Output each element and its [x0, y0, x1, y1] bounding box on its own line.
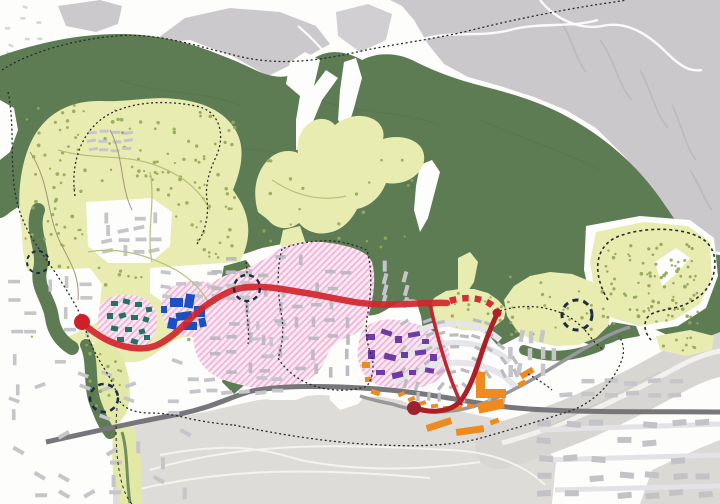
- building: [168, 400, 179, 404]
- building: [144, 335, 150, 340]
- building: [508, 347, 513, 359]
- tree-dot: [173, 127, 176, 130]
- building: [131, 315, 138, 320]
- tree-dot: [72, 109, 76, 113]
- tree-dot: [648, 292, 650, 294]
- tree-dot: [140, 276, 142, 278]
- building: [176, 282, 186, 286]
- building: [65, 276, 69, 288]
- tree-dot: [407, 184, 410, 187]
- tree-dot: [655, 247, 658, 250]
- tree-dot: [681, 307, 685, 311]
- building: [109, 490, 121, 494]
- tree-dot: [134, 276, 137, 279]
- building: [135, 302, 142, 307]
- building: [183, 487, 187, 499]
- building: [153, 212, 157, 223]
- tree-dot: [568, 318, 571, 321]
- tree-dot: [217, 256, 220, 259]
- tree-dot: [298, 208, 301, 211]
- tree-dot: [549, 296, 552, 299]
- building: [427, 392, 431, 401]
- building: [151, 237, 162, 241]
- building: [13, 354, 17, 365]
- building: [100, 130, 109, 133]
- building: [161, 306, 167, 313]
- building: [240, 296, 250, 300]
- tree-dot: [689, 298, 692, 301]
- tree-dot: [696, 292, 699, 295]
- tree-dot: [507, 301, 510, 304]
- tree-dot: [228, 228, 232, 232]
- building: [605, 393, 618, 398]
- building: [605, 378, 618, 383]
- tree-dot: [173, 131, 177, 135]
- building: [12, 409, 16, 420]
- tree-dot: [691, 247, 694, 250]
- building: [146, 307, 153, 313]
- tree-dot: [52, 186, 55, 189]
- tree-dot: [671, 264, 674, 267]
- building: [430, 354, 437, 361]
- tree-dot: [380, 159, 383, 162]
- tree-dot: [119, 384, 121, 386]
- route-node-south: [407, 401, 421, 415]
- tree-dot: [489, 296, 491, 298]
- tree-dot: [139, 120, 142, 123]
- building: [591, 456, 605, 463]
- tree-dot: [98, 267, 101, 270]
- building: [256, 321, 259, 330]
- building: [537, 490, 551, 497]
- building: [409, 370, 416, 375]
- tree-dot: [675, 302, 678, 305]
- building: [168, 411, 179, 415]
- building: [274, 319, 285, 323]
- tree-dot: [214, 143, 217, 146]
- building: [8, 298, 20, 302]
- tree-dot: [637, 282, 639, 284]
- tree-dot: [70, 215, 74, 219]
- building: [260, 369, 271, 373]
- building: [279, 302, 283, 313]
- tree-dot: [337, 222, 340, 225]
- tree-dot: [509, 321, 512, 324]
- building: [450, 345, 459, 348]
- building: [226, 370, 237, 374]
- building: [565, 490, 579, 496]
- route-node-mid: [493, 309, 502, 318]
- tree-dot: [228, 207, 231, 210]
- tree-dot: [580, 316, 583, 319]
- tree-dot: [686, 283, 689, 286]
- tree-dot: [108, 142, 111, 145]
- tree-dot: [612, 256, 616, 260]
- tree-dot: [614, 253, 616, 255]
- tree-dot: [676, 307, 679, 310]
- tree-dot: [648, 271, 651, 274]
- building: [119, 238, 130, 242]
- tree-dot: [612, 322, 615, 325]
- tree-dot: [609, 292, 612, 295]
- route-node-south-shape: [407, 401, 421, 415]
- tree-dot: [511, 315, 515, 319]
- building: [376, 370, 385, 375]
- tree-dot: [67, 145, 70, 148]
- building: [670, 379, 683, 384]
- building: [449, 333, 458, 336]
- tree-dot: [663, 285, 666, 288]
- building: [328, 287, 339, 291]
- tree-dot: [233, 196, 236, 199]
- tree-dot: [143, 170, 145, 172]
- tree-dot: [167, 152, 170, 155]
- tree-dot: [541, 293, 544, 296]
- building: [643, 421, 657, 428]
- tree-dot: [554, 326, 556, 328]
- tree-dot: [366, 240, 369, 243]
- building: [188, 377, 199, 381]
- building: [170, 298, 183, 307]
- tree-dot: [662, 344, 665, 347]
- tree-dot: [101, 179, 104, 182]
- tree-dot: [671, 315, 674, 318]
- building: [37, 38, 42, 41]
- tree-dot: [230, 244, 233, 247]
- tree-dot: [484, 300, 486, 302]
- building: [125, 327, 132, 332]
- tree-dot: [672, 282, 675, 285]
- tree-dot: [467, 303, 470, 306]
- route-node-mid-shape: [493, 309, 502, 318]
- tree-dot: [231, 120, 235, 124]
- building: [265, 354, 274, 357]
- tree-dot: [74, 136, 77, 139]
- building: [401, 352, 408, 358]
- tree-dot: [562, 309, 564, 311]
- tree-dot: [131, 166, 134, 169]
- tree-dot: [647, 307, 649, 309]
- tree-dot: [37, 131, 40, 134]
- tree-dot: [194, 181, 197, 184]
- building: [645, 471, 659, 478]
- tree-dot: [578, 290, 580, 292]
- building: [695, 419, 709, 426]
- tree-dot: [689, 315, 692, 318]
- tree-dot: [650, 305, 653, 308]
- tree-dot: [685, 344, 688, 347]
- building: [536, 437, 550, 444]
- tree-dot: [262, 229, 265, 232]
- building: [211, 270, 222, 274]
- masterplan-map-figure: Urban masterplan map — hillside town wit…: [0, 0, 720, 504]
- building: [48, 280, 52, 292]
- tree-dot: [198, 161, 201, 164]
- tree-dot: [116, 118, 119, 121]
- tree-dot: [401, 159, 404, 162]
- building: [110, 461, 122, 465]
- building: [104, 213, 108, 224]
- tree-dot: [457, 292, 460, 295]
- tree-dot: [83, 110, 85, 112]
- tree-dot: [379, 245, 382, 248]
- tree-dot: [88, 379, 91, 382]
- tree-dot: [50, 233, 53, 236]
- building: [136, 441, 140, 453]
- building: [626, 390, 639, 395]
- tree-dot: [191, 223, 194, 226]
- tree-dot: [127, 275, 130, 278]
- building: [226, 257, 237, 261]
- tree-dot: [685, 314, 689, 318]
- tree-dot: [144, 174, 147, 177]
- tree-dot: [677, 261, 680, 264]
- tree-dot: [500, 305, 503, 308]
- tree-dot: [154, 127, 157, 130]
- tree-dot: [606, 270, 609, 273]
- building: [275, 255, 286, 259]
- tree-dot: [696, 311, 699, 314]
- tree-dot: [200, 220, 203, 223]
- tree-dot: [384, 236, 387, 239]
- tree-dot: [226, 192, 229, 195]
- building: [210, 352, 221, 356]
- tree-dot: [99, 353, 101, 355]
- tree-dot: [411, 179, 414, 182]
- building: [624, 381, 637, 386]
- tree-dot: [679, 275, 682, 278]
- tree-dot: [646, 273, 648, 275]
- tree-dot: [226, 236, 229, 239]
- building: [582, 392, 595, 397]
- tree-dot: [77, 134, 79, 136]
- tree-dot: [43, 238, 46, 241]
- building: [589, 475, 603, 482]
- tree-dot: [654, 275, 656, 277]
- tree-dot: [687, 265, 690, 268]
- tree-dot: [59, 129, 62, 132]
- tree-dot: [289, 177, 292, 180]
- tree-dot: [605, 265, 608, 268]
- building: [111, 301, 118, 306]
- building: [671, 457, 685, 464]
- tree-dot: [267, 159, 270, 162]
- building: [292, 305, 303, 309]
- tree-dot: [543, 304, 546, 307]
- tree-dot: [175, 215, 177, 217]
- building: [80, 283, 92, 287]
- tree-dot: [24, 237, 26, 239]
- building: [567, 421, 581, 428]
- tree-dot: [404, 235, 406, 237]
- building: [669, 489, 683, 496]
- building: [541, 364, 546, 376]
- building: [541, 347, 546, 359]
- tree-dot: [106, 365, 109, 368]
- tree-dot: [73, 104, 76, 107]
- tree-dot: [613, 278, 616, 281]
- building: [107, 313, 113, 319]
- tree-dot: [539, 281, 542, 284]
- tree-dot: [162, 171, 165, 174]
- tree-dot: [187, 140, 190, 143]
- building: [325, 270, 336, 274]
- tree-dot: [637, 314, 641, 318]
- tree-dot: [203, 158, 206, 161]
- tree-dot: [60, 181, 63, 184]
- building: [346, 318, 350, 329]
- building: [345, 349, 349, 360]
- tree-dot: [498, 319, 501, 322]
- tree-dot: [686, 337, 688, 339]
- tree-dot: [79, 229, 82, 232]
- tree-dot: [208, 251, 211, 254]
- tree-dot: [108, 394, 111, 397]
- tree-dot: [566, 307, 569, 310]
- building: [620, 472, 634, 479]
- building: [383, 261, 387, 272]
- tree-dot: [121, 131, 124, 134]
- tree-dot: [66, 119, 69, 122]
- tree-dot: [467, 308, 470, 311]
- tree-dot: [612, 287, 615, 290]
- tree-dot: [683, 259, 686, 262]
- tree-dot: [117, 369, 119, 371]
- tree-dot: [104, 283, 108, 287]
- building: [226, 270, 237, 274]
- tree-dot: [688, 321, 692, 325]
- tree-dot: [79, 190, 82, 193]
- building: [311, 303, 322, 307]
- tree-dot: [652, 253, 655, 256]
- tree-dot: [63, 173, 66, 176]
- tree-dot: [208, 255, 210, 257]
- tree-dot: [629, 255, 631, 257]
- tree-dot: [657, 301, 660, 304]
- tree-dot: [602, 315, 605, 318]
- building: [136, 238, 147, 242]
- building: [422, 339, 429, 344]
- tree-dot: [120, 118, 124, 122]
- tree-dot: [643, 310, 646, 313]
- building: [251, 337, 260, 340]
- tree-dot: [182, 158, 185, 161]
- tree-dot: [640, 272, 644, 276]
- building: [308, 337, 319, 341]
- building: [437, 393, 441, 402]
- building: [324, 318, 335, 322]
- tree-dot: [185, 201, 189, 205]
- tree-dot: [233, 126, 237, 130]
- building: [226, 335, 237, 339]
- tree-dot: [209, 115, 213, 119]
- tree-dot: [225, 205, 228, 208]
- tree-dot: [137, 169, 141, 173]
- tree-dot: [224, 187, 227, 190]
- building: [668, 393, 681, 398]
- building: [295, 317, 299, 328]
- tree-dot: [693, 346, 696, 349]
- building: [563, 454, 577, 461]
- tree-dot: [693, 279, 695, 281]
- tree-dot: [49, 167, 51, 169]
- building: [327, 334, 338, 338]
- tree-dot: [110, 169, 112, 171]
- building: [552, 348, 557, 360]
- building: [226, 350, 237, 354]
- tree-dot: [224, 141, 227, 144]
- tree-dot: [673, 309, 675, 311]
- tree-dot: [648, 309, 650, 311]
- tree-dot: [63, 226, 66, 229]
- tree-dot: [37, 143, 41, 147]
- tree-dot: [26, 118, 29, 121]
- route-node-west: [74, 314, 90, 330]
- tree-dot: [58, 265, 62, 269]
- tree-dot: [647, 284, 650, 287]
- tree-dot: [174, 162, 176, 164]
- tree-dot: [362, 210, 366, 214]
- tree-dot: [54, 121, 57, 124]
- tree-dot: [629, 308, 632, 311]
- tree-dot: [689, 275, 692, 278]
- building: [88, 131, 97, 134]
- tree-dot: [47, 220, 50, 223]
- building: [672, 419, 686, 426]
- tree-dot: [629, 259, 632, 262]
- building: [211, 287, 222, 291]
- tree-dot: [606, 316, 609, 319]
- building: [112, 475, 116, 487]
- building: [262, 335, 266, 346]
- tree-dot: [198, 186, 201, 189]
- tree-dot: [199, 111, 202, 114]
- building: [122, 147, 131, 150]
- clearings-in-park-shape: [86, 198, 172, 263]
- tree-dot: [61, 111, 64, 114]
- tree-dot: [95, 404, 98, 407]
- tree-dot: [610, 282, 613, 285]
- building: [24, 311, 36, 315]
- building: [341, 271, 352, 275]
- tree-dot: [215, 253, 217, 255]
- tree-dot: [111, 120, 115, 124]
- tree-dot: [677, 267, 680, 270]
- tree-dot: [57, 232, 60, 235]
- building: [299, 255, 303, 266]
- tree-dot: [689, 336, 692, 339]
- building: [11, 330, 23, 334]
- tree-dot: [66, 126, 69, 129]
- building: [124, 245, 128, 256]
- tree-dot: [34, 200, 38, 204]
- tree-dot: [55, 198, 59, 202]
- tree-dot: [67, 266, 70, 269]
- tree-dot: [509, 276, 512, 279]
- tree-dot: [269, 240, 272, 243]
- masterplan-map-canvas[interactable]: Urban masterplan map — hillside town wit…: [0, 0, 720, 504]
- building: [279, 347, 283, 358]
- tree-dot: [655, 320, 657, 322]
- tree-dot: [54, 207, 57, 210]
- building: [559, 392, 572, 397]
- building: [135, 217, 146, 221]
- tree-dot: [167, 193, 170, 196]
- building: [206, 389, 217, 393]
- tree-dot: [139, 149, 142, 152]
- building: [64, 328, 76, 332]
- building: [329, 367, 333, 378]
